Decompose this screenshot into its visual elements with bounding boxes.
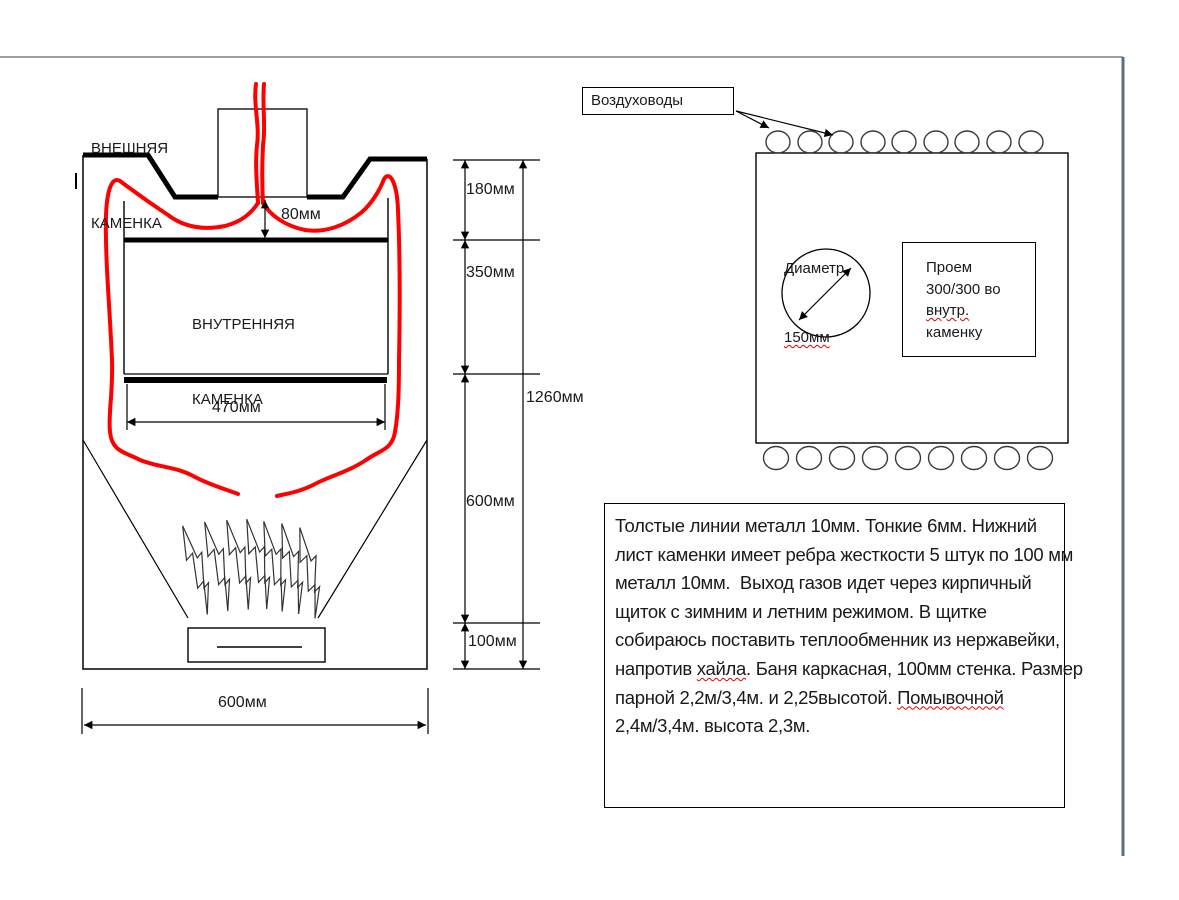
- dim-label-80mm: 80мм: [281, 206, 321, 224]
- opening-label: Проем 300/300 во внутр. каменку: [903, 243, 1035, 343]
- air-duct-holes-top: [766, 131, 1043, 153]
- dim-label-350mm: 350мм: [466, 264, 515, 282]
- air-ducts-callout-box: Воздуховоды: [582, 87, 734, 115]
- dim-label-600mm-height: 600мм: [466, 493, 515, 511]
- firebox-funnel: [83, 440, 427, 618]
- document-page: ВНЕШНЯЯ КАМЕНКА ВНУТРЕННЯЯ КАМЕНКА 80мм …: [0, 0, 1179, 900]
- air-duct-holes-bottom: [764, 447, 1053, 470]
- dim-label-100mm: 100мм: [468, 633, 517, 651]
- dim-label-470mm: 470мм: [212, 399, 261, 417]
- notes-text: Толстые линии металл 10мм. Тонкие 6мм. Н…: [605, 504, 1064, 741]
- diameter-label: Диаметр 150мм: [784, 211, 844, 395]
- grate-box: [188, 628, 325, 662]
- air-ducts-label: Воздуховоды: [583, 88, 733, 114]
- opening-callout-box: Проем 300/300 во внутр. каменку: [902, 242, 1036, 357]
- dim-label-600mm-width: 600мм: [218, 694, 267, 712]
- internal-stove-label: ВНУТРЕННЯЯ КАМЕНКА: [192, 262, 295, 462]
- dim-label-1260mm: 1260мм: [526, 389, 584, 407]
- external-stove-label: ВНЕШНЯЯ КАМЕНКА: [91, 86, 168, 286]
- flames-icon: [176, 517, 329, 619]
- dim-label-180mm: 180мм: [466, 181, 515, 199]
- air-ducts-callout-arrows: [736, 111, 833, 135]
- notes-text-box: Толстые линии металл 10мм. Тонкие 6мм. Н…: [604, 503, 1065, 808]
